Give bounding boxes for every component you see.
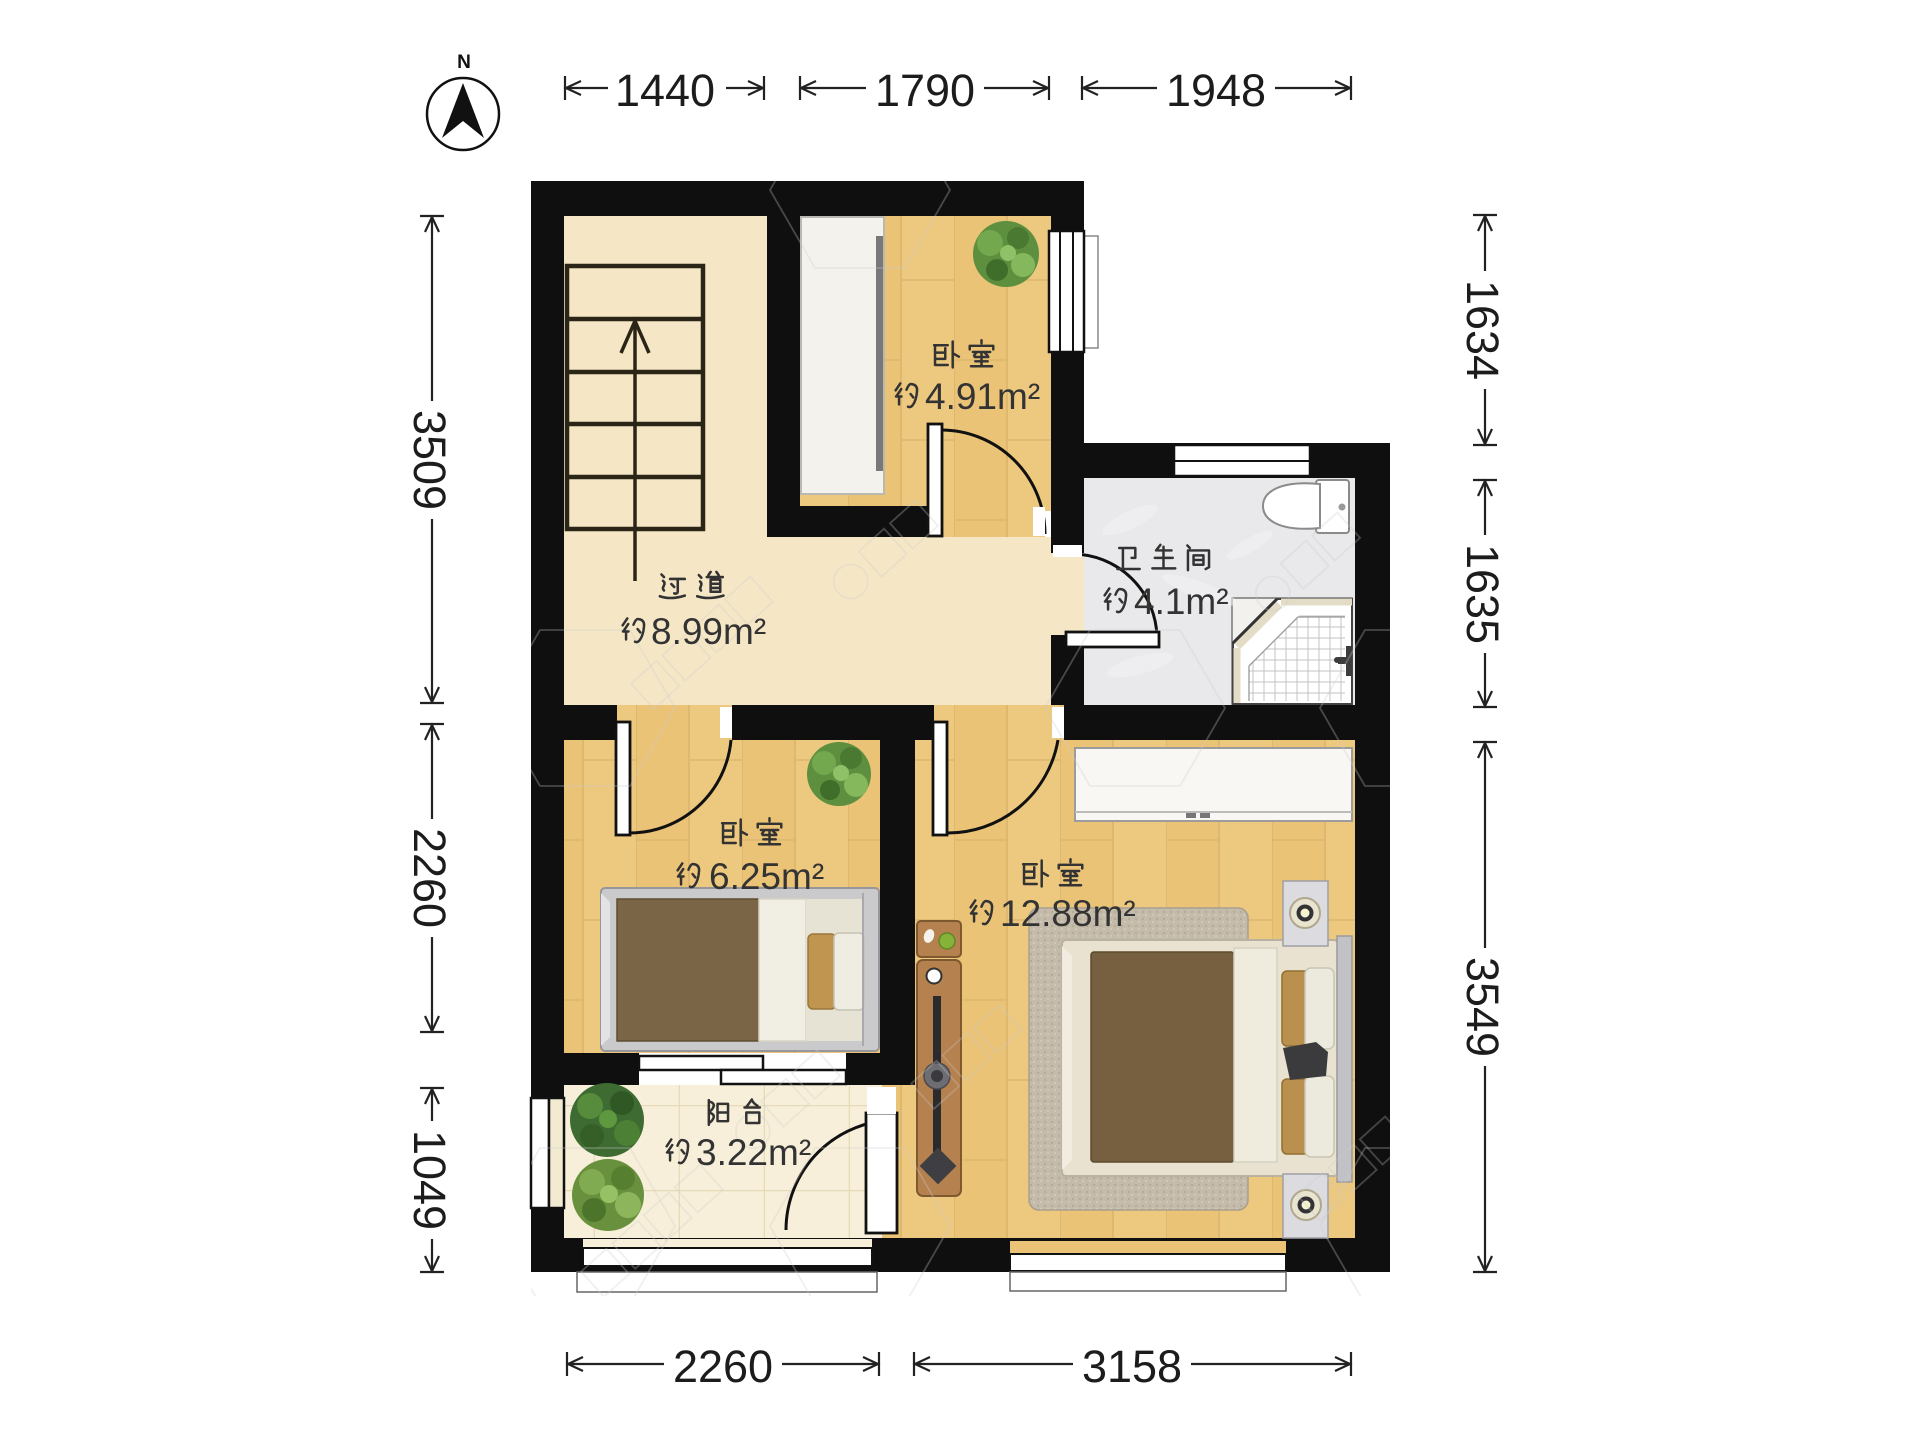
svg-text:4.91m²: 4.91m²	[925, 376, 1040, 417]
svg-text:3549: 3549	[1457, 957, 1508, 1057]
svg-text:1635: 1635	[1457, 544, 1508, 644]
svg-text:3509: 3509	[404, 410, 455, 510]
svg-text:3.22m²: 3.22m²	[696, 1132, 811, 1173]
svg-text:6.25m²: 6.25m²	[709, 856, 824, 897]
svg-text:N: N	[457, 52, 471, 73]
svg-text:1948: 1948	[1166, 65, 1266, 116]
svg-text:4.1m²: 4.1m²	[1134, 581, 1229, 622]
svg-text:8.99m²: 8.99m²	[651, 611, 766, 652]
svg-text:3158: 3158	[1082, 1341, 1182, 1392]
svg-text:12.88m²: 12.88m²	[1000, 893, 1136, 934]
svg-text:2260: 2260	[404, 828, 455, 928]
svg-text:1440: 1440	[615, 65, 715, 116]
svg-text:1634: 1634	[1457, 280, 1508, 380]
svg-text:1049: 1049	[404, 1130, 455, 1230]
svg-text:1790: 1790	[875, 65, 975, 116]
svg-text:2260: 2260	[673, 1341, 773, 1392]
